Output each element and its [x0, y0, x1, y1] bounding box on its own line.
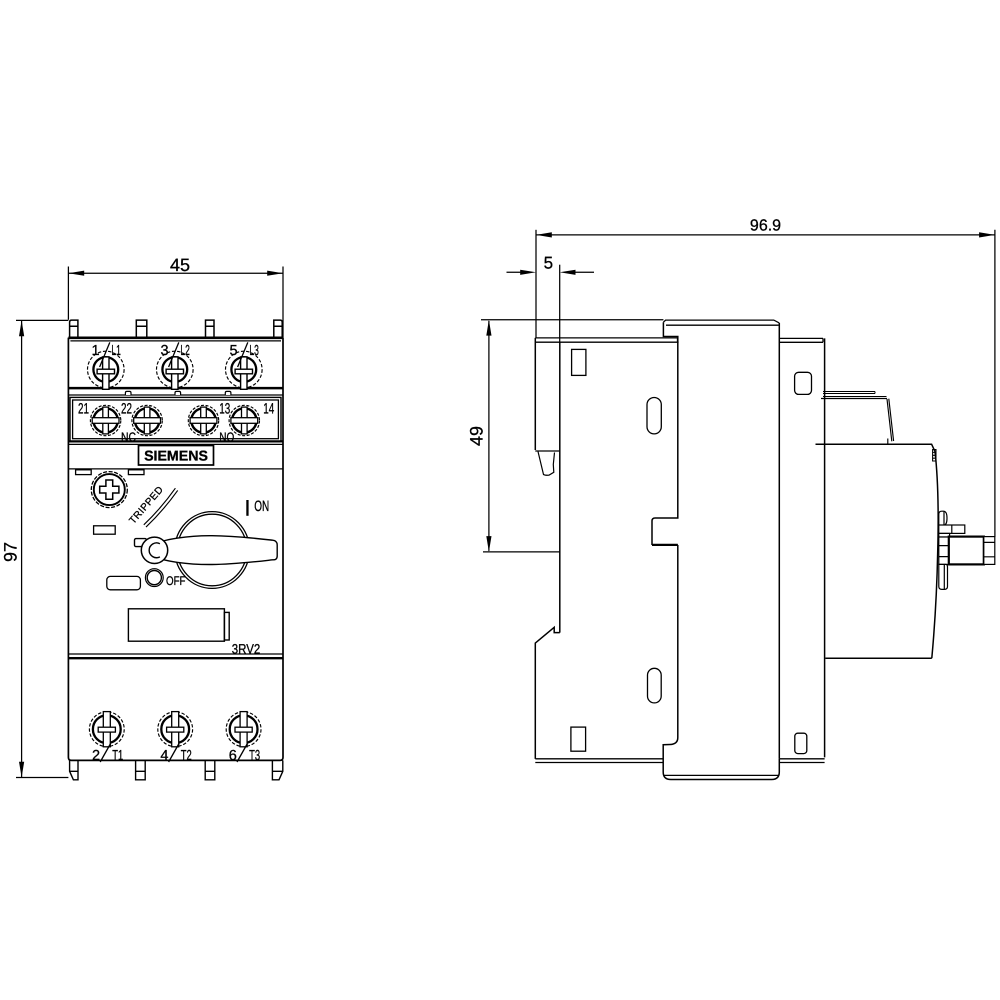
svg-text:L3: L3 [249, 343, 259, 359]
svg-text:ON: ON [254, 498, 269, 515]
svg-text:2: 2 [92, 748, 100, 764]
svg-text:6: 6 [229, 748, 237, 764]
svg-text:5: 5 [544, 253, 553, 272]
svg-text:SIEMENS: SIEMENS [144, 449, 208, 465]
svg-text:21: 21 [78, 400, 89, 417]
svg-text:5: 5 [229, 343, 237, 359]
svg-text:49: 49 [467, 426, 487, 446]
svg-text:OFF: OFF [166, 574, 186, 588]
svg-text:3: 3 [160, 343, 168, 359]
svg-text:13: 13 [219, 400, 230, 417]
svg-text:T3: T3 [249, 748, 260, 764]
svg-text:T2: T2 [181, 748, 192, 764]
svg-text:4: 4 [160, 748, 168, 764]
svg-text:97: 97 [1, 542, 21, 562]
svg-text:L2: L2 [180, 343, 190, 359]
svg-text:T1: T1 [112, 748, 123, 764]
svg-text:22: 22 [121, 400, 132, 417]
svg-text:14: 14 [263, 400, 274, 417]
svg-text:1: 1 [91, 343, 99, 359]
svg-text:L1: L1 [111, 343, 121, 359]
svg-text:45: 45 [170, 255, 190, 275]
svg-text:96.9: 96.9 [750, 218, 781, 235]
